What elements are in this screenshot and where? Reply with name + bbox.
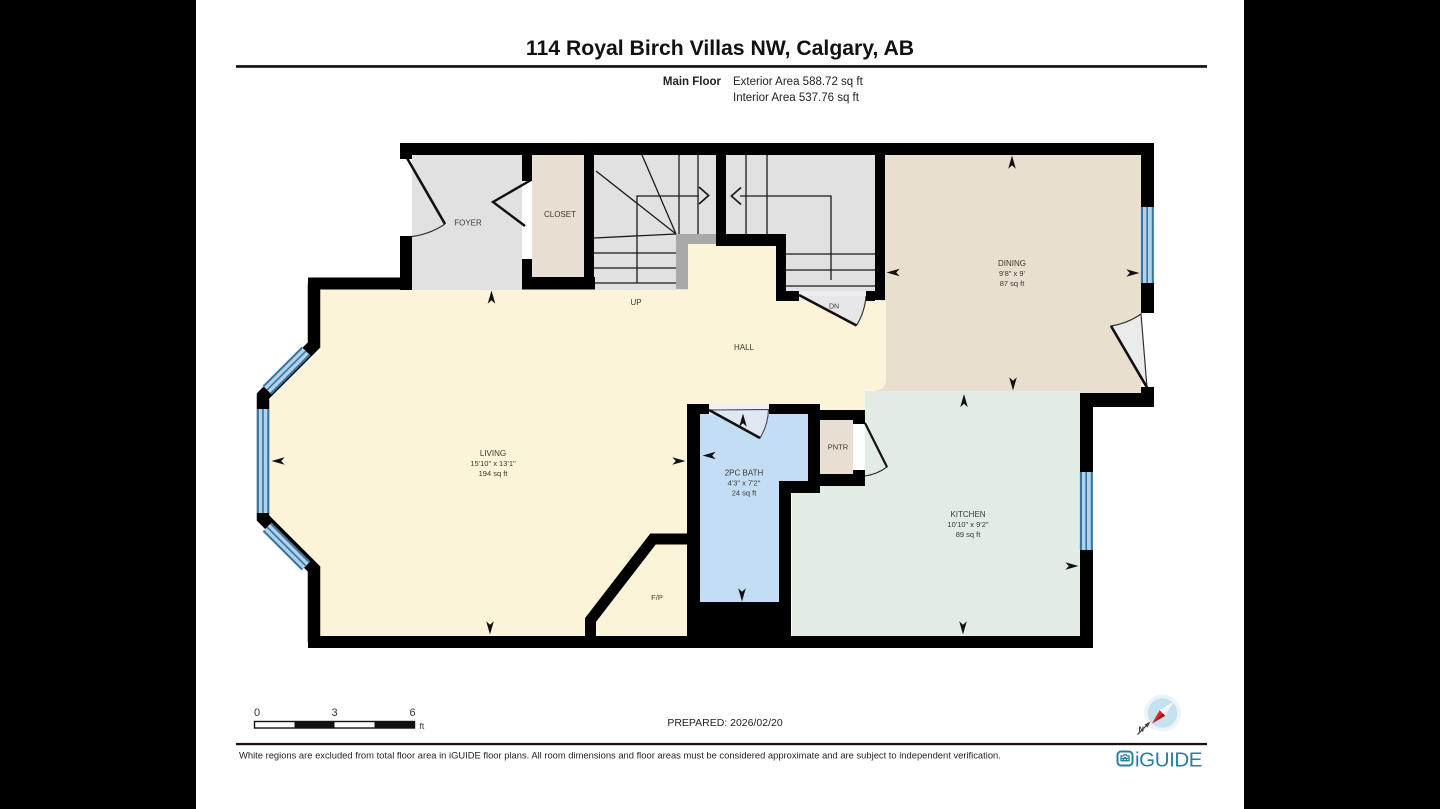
- svg-text:3: 3: [331, 707, 337, 719]
- svg-text:0: 0: [254, 707, 260, 719]
- svg-text:CLOSET: CLOSET: [544, 210, 576, 219]
- svg-text:4'3" x 7'2": 4'3" x 7'2": [728, 479, 761, 488]
- svg-text:DINING: DINING: [998, 259, 1026, 268]
- svg-text:F/P: F/P: [651, 593, 663, 602]
- svg-text:9'8" x 9': 9'8" x 9': [999, 269, 1026, 278]
- svg-text:DN: DN: [829, 304, 839, 311]
- svg-text:HALL: HALL: [734, 343, 755, 352]
- svg-text:6: 6: [409, 707, 415, 719]
- svg-text:2PC BATH: 2PC BATH: [725, 469, 764, 478]
- svg-text:LIVING: LIVING: [480, 449, 506, 458]
- svg-text:Exterior Area 588.72 sq ft: Exterior Area 588.72 sq ft: [733, 76, 864, 88]
- svg-text:PREPARED: 2026/02/20: PREPARED: 2026/02/20: [667, 717, 783, 729]
- svg-text:87 sq ft: 87 sq ft: [1000, 279, 1026, 288]
- svg-text:UP: UP: [630, 298, 641, 307]
- svg-text:10'10" x 9'2": 10'10" x 9'2": [947, 520, 988, 529]
- svg-text:FOYER: FOYER: [454, 219, 482, 228]
- svg-text:194 sq ft: 194 sq ft: [479, 469, 509, 478]
- svg-text:24 sq ft: 24 sq ft: [732, 489, 758, 498]
- svg-text:ft: ft: [420, 721, 425, 731]
- svg-text:KITCHEN: KITCHEN: [950, 510, 985, 519]
- svg-text:15'10" x 13'1": 15'10" x 13'1": [470, 459, 516, 468]
- svg-text:Interior Area 537.76 sq ft: Interior Area 537.76 sq ft: [733, 92, 860, 104]
- svg-text:White regions are excluded fro: White regions are excluded from total fl…: [239, 750, 1001, 761]
- svg-text:Main Floor: Main Floor: [663, 76, 722, 88]
- svg-text:N: N: [1139, 725, 1144, 734]
- svg-text:89 sq ft: 89 sq ft: [956, 530, 982, 539]
- svg-text:iGUIDE: iGUIDE: [1135, 749, 1202, 772]
- svg-text:PNTR: PNTR: [828, 443, 849, 452]
- svg-text:114 Royal Birch Villas NW, Cal: 114 Royal Birch Villas NW, Calgary, AB: [526, 37, 914, 60]
